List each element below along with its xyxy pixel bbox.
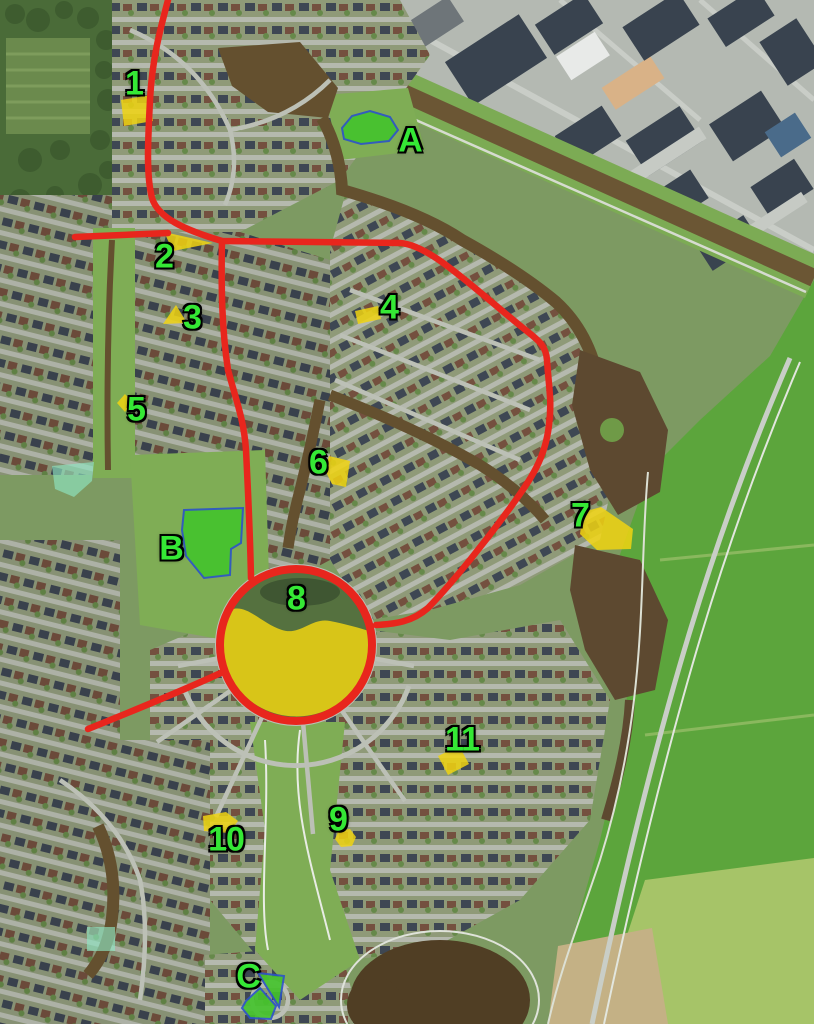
teal-area-south <box>87 927 115 951</box>
map-label-9: 9 <box>329 801 347 840</box>
map-label-8: 8 <box>287 580 305 619</box>
map-label-C: C <box>236 958 260 997</box>
map-label-10: 10 <box>208 821 244 860</box>
map-label-3: 3 <box>183 299 201 338</box>
map-label-11: 11 <box>445 721 479 760</box>
map-label-7: 7 <box>571 497 589 536</box>
map-label-6: 6 <box>309 444 327 483</box>
map-label-B: B <box>159 530 183 569</box>
aerial-map: 1 2 3 4 5 6 7 8 9 10 11 A B C <box>0 0 814 1024</box>
route-west-spur <box>75 233 168 237</box>
map-label-2: 2 <box>155 238 173 277</box>
map-label-1: 1 <box>125 65 143 104</box>
map-label-4: 4 <box>380 289 398 328</box>
map-label-A: A <box>398 122 422 161</box>
map-label-5: 5 <box>127 391 145 430</box>
